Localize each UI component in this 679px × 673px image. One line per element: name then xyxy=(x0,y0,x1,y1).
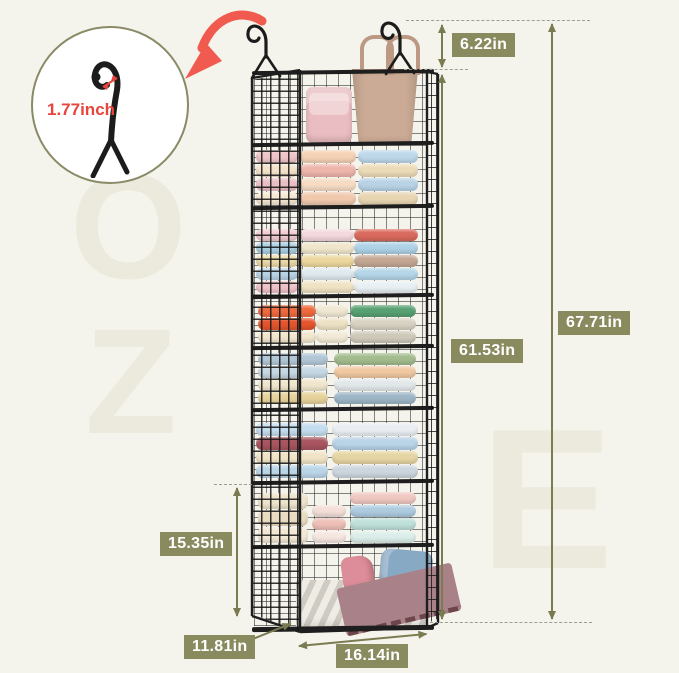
dashed-line-hook-top xyxy=(406,20,590,21)
dashed-line-rack-bottom xyxy=(430,622,592,623)
dimension-label-hook-to-top: 6.22in xyxy=(452,33,515,57)
folded-clothes-stack xyxy=(354,228,418,293)
folded-clothes-stack xyxy=(316,304,348,343)
dimension-arrow-shelving-height xyxy=(441,75,443,619)
left-mesh-panel xyxy=(252,70,300,632)
folded-clothes-stack xyxy=(334,352,416,404)
folded-clothes-stack xyxy=(332,422,418,478)
product-dimension-diagram: O Z E 1.77inch xyxy=(0,0,679,673)
handbag-flap xyxy=(309,93,349,115)
dimension-arrow-total-height xyxy=(551,24,553,619)
watermark-letter: Z xyxy=(85,295,177,468)
right-mesh-panel xyxy=(426,72,439,624)
chevron-storage-bin xyxy=(296,580,428,630)
hook-opening-dimension-label: 1.77inch xyxy=(47,100,115,120)
dimension-label-shelving-height: 61.53in xyxy=(451,339,523,363)
dimension-label-depth: 11.81in xyxy=(184,635,255,659)
watermark-letter: E xyxy=(480,385,613,615)
zoom-callout-arrow xyxy=(185,15,262,79)
dimension-arrow-hook-to-top xyxy=(441,25,443,67)
hook-detail-inset-circle: 1.77inch xyxy=(31,26,189,184)
tan-tote-bag xyxy=(352,69,418,143)
dimension-label-width: 16.14in xyxy=(336,644,408,668)
dimension-arrow-lower-section xyxy=(236,488,238,616)
folded-clothes-stack xyxy=(312,504,346,543)
dashed-line-lower-section xyxy=(214,484,252,485)
folded-clothes-stack xyxy=(350,304,416,343)
folded-clothes-stack xyxy=(350,491,416,543)
dimension-label-lower-section: 15.35in xyxy=(160,532,232,556)
folded-clothes-stack xyxy=(300,149,356,205)
folded-clothes-stack xyxy=(300,228,354,293)
pink-quilted-handbag xyxy=(306,87,352,143)
dimension-label-total-height: 67.71in xyxy=(558,311,630,335)
folded-clothes-stack xyxy=(358,149,418,205)
dashed-line-rack-top xyxy=(404,69,468,70)
